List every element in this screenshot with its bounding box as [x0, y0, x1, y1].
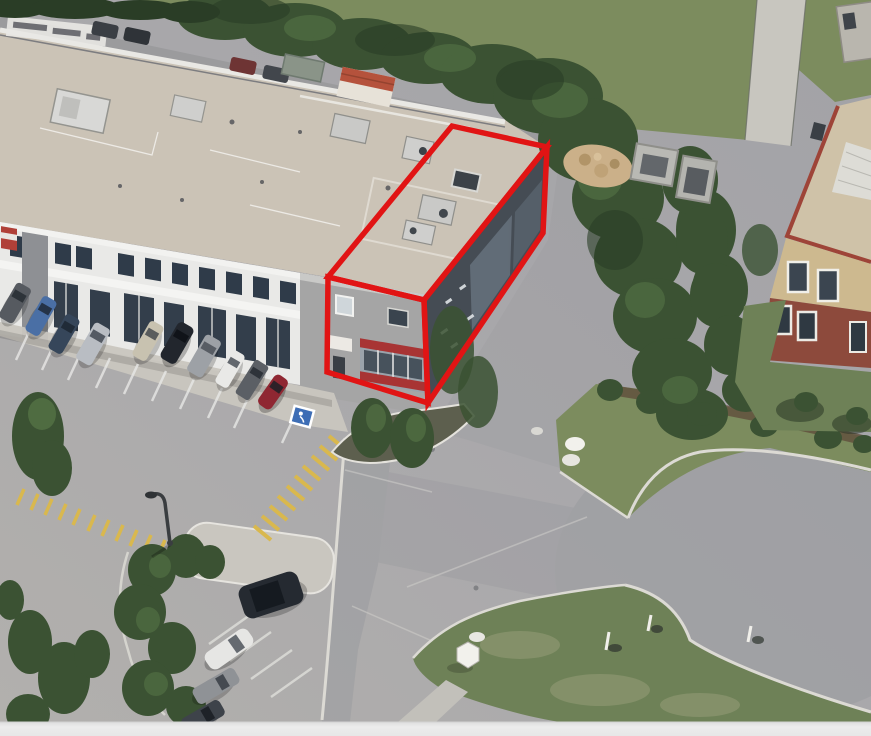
handicap-stall-marking: [290, 406, 314, 428]
aerial-map-canvas[interactable]: [0, 0, 871, 736]
screenshot-root: [0, 0, 871, 736]
bottom-ui-bar[interactable]: [0, 722, 871, 736]
